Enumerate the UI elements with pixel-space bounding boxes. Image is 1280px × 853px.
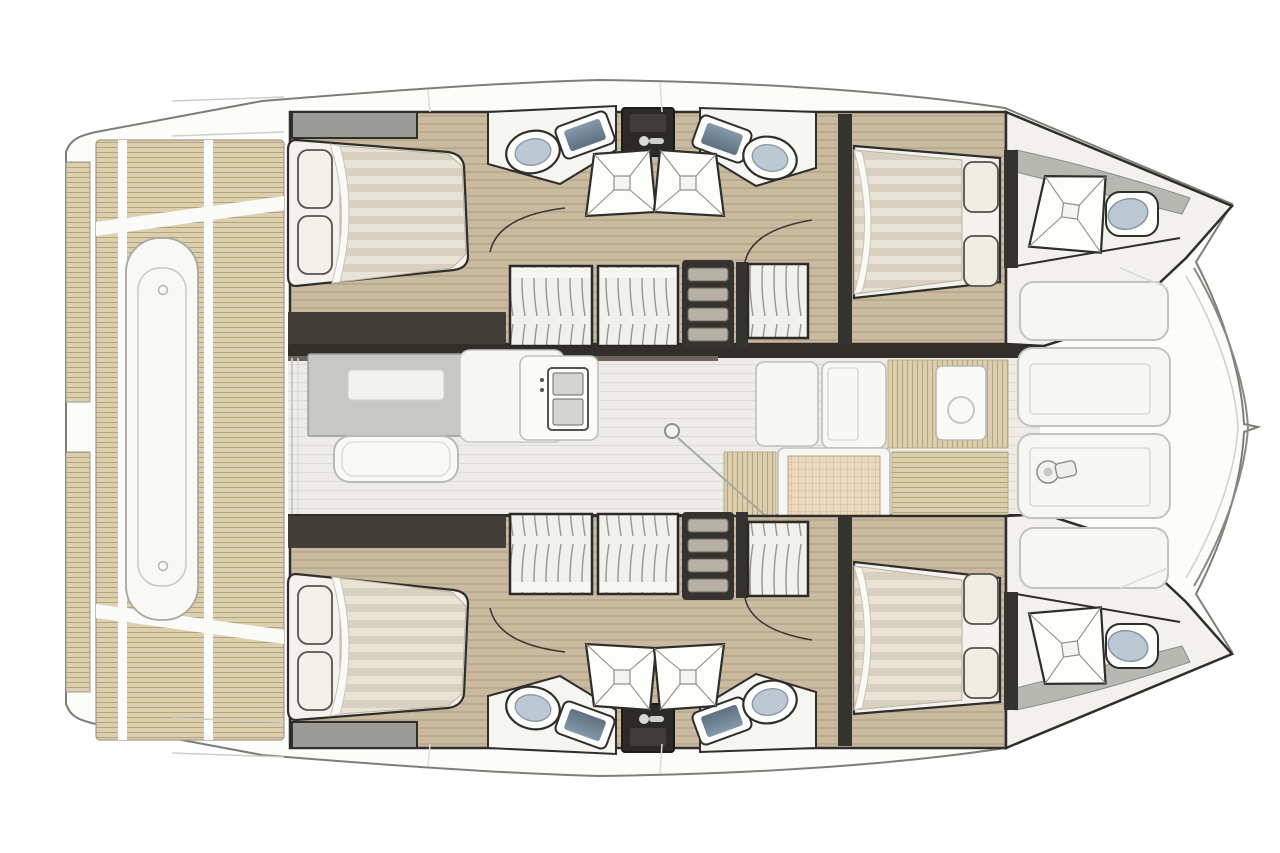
sunpad-cushion bbox=[1018, 348, 1170, 426]
galley-sink bbox=[540, 368, 588, 430]
cockpit-table bbox=[936, 366, 986, 440]
swim-platform bbox=[66, 162, 90, 402]
sofa-bench bbox=[334, 436, 458, 482]
deck-seam bbox=[204, 140, 213, 740]
catamaran-floor-plan bbox=[0, 0, 1280, 853]
dining-table bbox=[308, 354, 480, 436]
sunpad-cushion bbox=[1020, 528, 1168, 588]
floor-plan-page: Catamaran yacht floor plan — top-down de… bbox=[0, 0, 1280, 853]
sunpad-cushion bbox=[1018, 434, 1170, 518]
cockpit-bench bbox=[126, 238, 198, 620]
sunpad-cushion bbox=[1020, 282, 1168, 340]
mast-step bbox=[665, 424, 679, 438]
galley-counter bbox=[460, 350, 598, 442]
swim-platform bbox=[66, 452, 90, 692]
aft-deck bbox=[66, 97, 284, 757]
saloon bbox=[288, 334, 1040, 539]
